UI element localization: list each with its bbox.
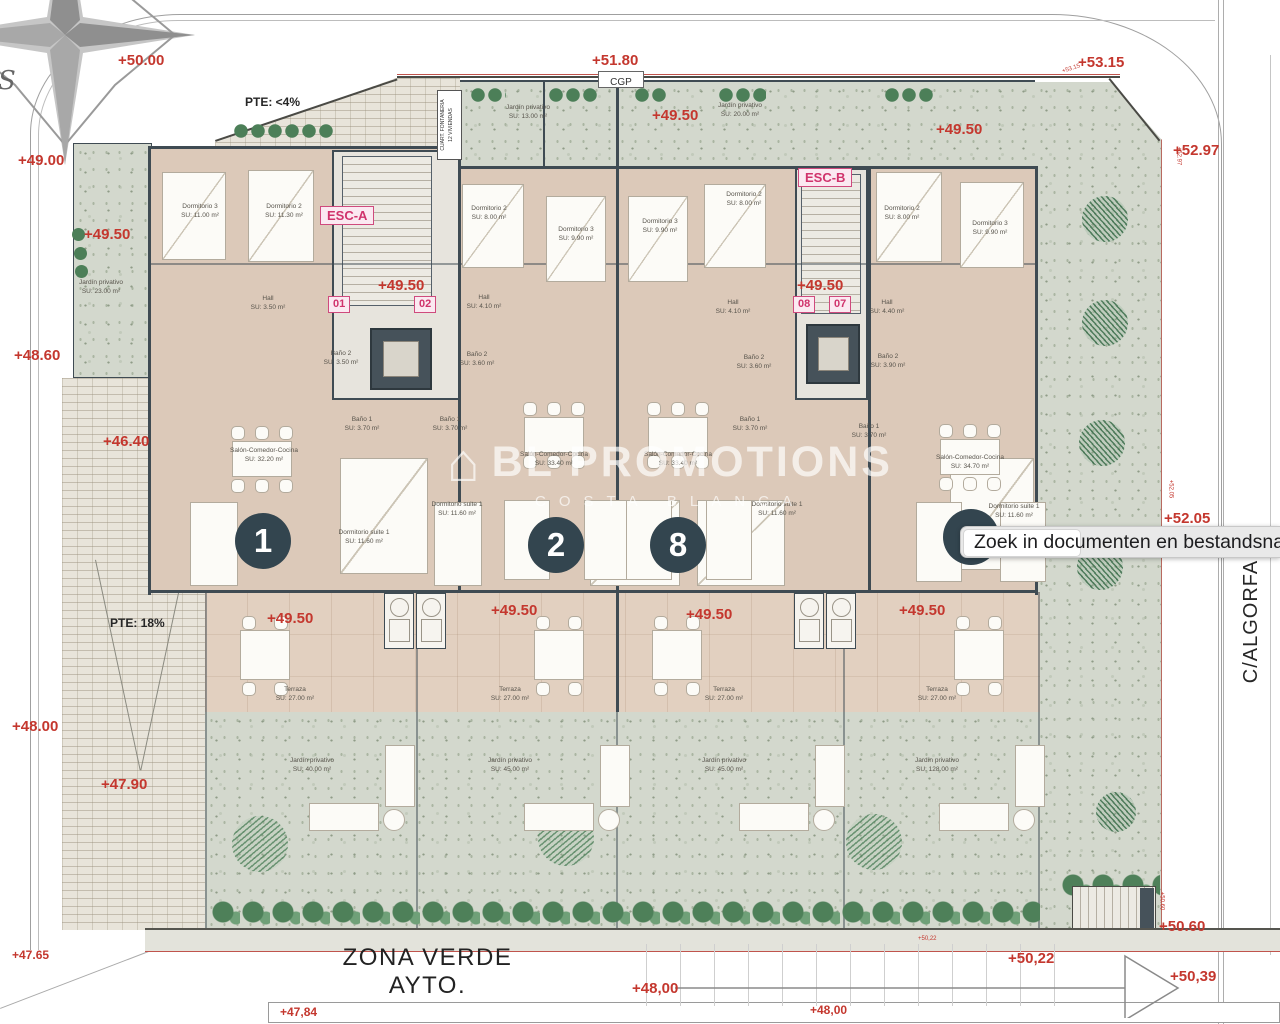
elevation-label: +50,22 — [1008, 950, 1054, 967]
elevation-label: +48,00 — [810, 1003, 847, 1017]
pte-top-label: PTE: <4% — [245, 95, 300, 109]
cgp-label: CGP — [610, 77, 632, 88]
wall — [868, 166, 871, 593]
unit-tag-08: 08 — [793, 296, 815, 313]
room-label: HallSU: 4.10 m² — [441, 294, 527, 312]
terrace-label: TerrazaSU: 27.00 m² — [467, 686, 553, 704]
terrace-label: TerrazaSU: 27.00 m² — [252, 686, 338, 704]
terrace-label: TerrazaSU: 27.00 m² — [894, 686, 980, 704]
garden-divider — [543, 82, 545, 168]
elevation-label: +49.50 — [899, 602, 945, 619]
house-icon: ⌂ — [447, 443, 480, 483]
search-bar[interactable] — [960, 526, 1280, 558]
shrub-row — [884, 86, 934, 104]
terrace-edge — [205, 592, 207, 930]
garden-label: Jardín privativoSU: 45.00 m² — [681, 757, 767, 775]
elevation-label: +49.50 — [267, 610, 313, 627]
room-label: Dormitorio 3SU: 9.90 m² — [533, 226, 619, 244]
garden-label: Jardín privativoSU: 40.00 m² — [269, 757, 355, 775]
elevation-label: +46.40 — [103, 433, 149, 450]
room-label: Dormitorio 2SU: 11.30 m² — [241, 203, 327, 221]
garden-label: Jardín privativoSU: 45.00 m² — [467, 757, 553, 775]
room-label: Dormitorio 3SU: 11.00 m² — [157, 203, 243, 221]
terrace-table — [646, 616, 710, 696]
compass-icon — [0, 0, 215, 165]
stair-tag-esc-a: ESC-A — [320, 206, 374, 225]
wall — [148, 146, 151, 595]
bed — [628, 196, 688, 282]
shrub-row — [634, 86, 668, 104]
room-label: Dormitorio 3SU: 9.90 m² — [947, 220, 1033, 238]
room-label: HallSU: 3.50 m² — [225, 295, 311, 313]
shrub-row — [233, 122, 333, 140]
room-label: Baño 1SU: 3.70 m² — [319, 416, 405, 434]
elevation-label: +51.80 — [592, 52, 638, 69]
utility-box — [384, 593, 414, 649]
edge-marker: +50.60 — [1158, 892, 1164, 911]
unit-tag-01: 01 — [328, 296, 350, 313]
elevation-label: +50.60 — [1159, 918, 1205, 935]
watermark-subtitle: COSTA BLANCA — [420, 493, 920, 510]
room-label: Baño 2SU: 3.90 m² — [845, 353, 931, 371]
room-label: Baño 2SU: 3.60 m² — [434, 351, 520, 369]
room-label: Jardín privativoSU: 23.00 m² — [58, 279, 144, 297]
top-retaining-wall — [397, 76, 1120, 78]
hedge-row — [210, 897, 1040, 930]
fontaneria-label: CUART. FONTANERIA 12 VIVIENDAS — [440, 92, 455, 158]
stair-tag-esc-b: ESC-B — [798, 168, 852, 187]
elevation-label: +50,39 — [1170, 968, 1216, 985]
wall — [460, 166, 1035, 169]
terrace-table — [234, 616, 298, 696]
elevation-label: +48,00 — [632, 980, 678, 997]
compass-south-label: S — [0, 66, 16, 96]
shrub-row — [470, 86, 506, 104]
terrace-table — [528, 616, 592, 696]
elevation-label: +47.90 — [101, 776, 147, 793]
tree — [232, 816, 288, 872]
shrub-row — [548, 86, 600, 104]
edge-marker: +50,22 — [918, 936, 937, 942]
cgp-box: CGP — [598, 71, 644, 88]
room-label: HallSU: 4.10 m² — [690, 299, 776, 317]
garden-left — [73, 143, 152, 378]
wall — [150, 590, 1038, 593]
tree — [1079, 420, 1125, 466]
unit-tag-07: 07 — [829, 296, 851, 313]
elevation-label: +49.50 — [84, 226, 130, 243]
room-label: Baño 2SU: 3.50 m² — [298, 350, 384, 368]
street-label: C/ALGORFA — [1240, 549, 1263, 694]
wall — [616, 82, 619, 712]
room-label: Dormitorio 2SU: 8.00 m² — [446, 205, 532, 223]
site-plan: S CGP CUART. FONTANERIA 12 VIVIENDAS PTE… — [0, 0, 1280, 1024]
bed — [462, 184, 524, 268]
terrace-table — [948, 616, 1012, 696]
pte-ramp-label: PTE: 18% — [110, 616, 165, 630]
room-label: Dormitorio suite 1SU: 11.60 m² — [321, 529, 407, 547]
utility-box — [794, 593, 824, 649]
watermark-logo: ⌂ BL PROMOTIONS COSTA BLANCA — [420, 438, 920, 510]
street-direction-arrow — [670, 950, 1190, 1018]
elevation-label: +49.00 — [18, 152, 64, 169]
search-input[interactable] — [961, 527, 1280, 557]
edge-marker: +52.05 — [1167, 480, 1173, 499]
elevation-label: +48.60 — [14, 347, 60, 364]
elevation-label: +53.15 — [1078, 54, 1124, 71]
elevation-label: +50.00 — [118, 52, 164, 69]
tree — [1082, 196, 1128, 242]
street-line — [1270, 55, 1271, 955]
boundary-red — [397, 74, 1120, 75]
unit-circle-2: 2 — [528, 517, 584, 573]
garden-label: Jardín privativoSU: 128.00 m² — [894, 757, 980, 775]
watermark-name: BL PROMOTIONS — [492, 438, 893, 487]
elevation-label: +49.50 — [936, 121, 982, 138]
unit-tag-02: 02 — [414, 296, 436, 313]
room-label: Dormitorio 2SU: 8.00 m² — [859, 205, 945, 223]
room-label: Baño 1SU: 3.70 m² — [407, 416, 493, 434]
garden-wall — [460, 80, 1035, 82]
zona-verde-label: ZONA VERDE AYTO. — [330, 944, 525, 1000]
sofa — [190, 502, 238, 586]
elevation-label: +49.50 — [652, 107, 698, 124]
room-label: Salón-Comedor-CocinaSU: 34.70 m² — [927, 454, 1013, 472]
unit-circle-8: 8 — [650, 517, 706, 573]
elevation-label: +47,84 — [280, 1005, 317, 1019]
tree — [1096, 792, 1136, 832]
room-label: Salón-Comedor-CocinaSU: 32.20 m² — [221, 447, 307, 465]
shrub — [74, 247, 87, 260]
shrub — [75, 265, 88, 278]
utility-box — [826, 593, 856, 649]
room-label: Baño 2SU: 3.60 m² — [711, 354, 797, 372]
elevation-label: +48.00 — [12, 718, 58, 735]
unit-circle-1: 1 — [235, 513, 291, 569]
room-label: Baño 1SU: 3.70 m² — [707, 416, 793, 434]
elevation-label: +49.50 — [686, 606, 732, 623]
elevation-label: +52.05 — [1164, 510, 1210, 527]
room-label: Jardín privativoSU: 20.00 m² — [697, 102, 783, 120]
room-label: HallSU: 4.40 m² — [844, 299, 930, 317]
elevation-label: +49.50 — [378, 277, 424, 294]
room-label: Dormitorio 2SU: 8.00 m² — [701, 191, 787, 209]
elevation-label: +47.65 — [12, 948, 49, 962]
street-line — [1223, 0, 1224, 1024]
terrace-label: TerrazaSU: 27.00 m² — [681, 686, 767, 704]
room-label: Dormitorio 3SU: 9.90 m² — [617, 218, 703, 236]
room-label: Jardín privativoSU: 13.00 m² — [485, 104, 571, 122]
elevation-label: +49.50 — [797, 277, 843, 294]
utility-box — [416, 593, 446, 649]
tree — [1082, 300, 1128, 346]
sofa — [584, 500, 630, 580]
edge-marker: +52.97 — [1175, 147, 1181, 166]
elevation-label: +49.50 — [491, 602, 537, 619]
